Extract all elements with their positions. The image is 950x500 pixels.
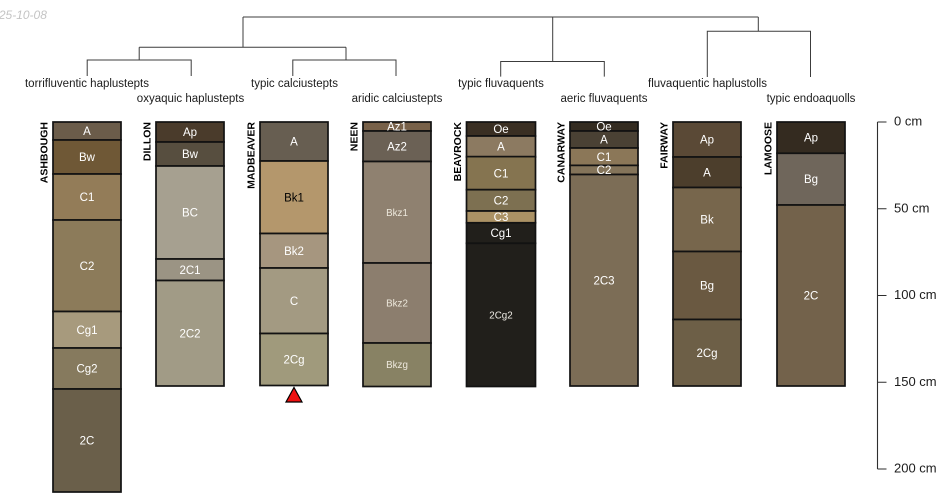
- svg-text:150 cm: 150 cm: [894, 374, 937, 389]
- svg-text:A: A: [600, 135, 608, 147]
- svg-text:2C1: 2C1: [179, 265, 200, 277]
- svg-text:BEAVROCK: BEAVROCK: [452, 122, 464, 182]
- svg-text:A: A: [83, 126, 91, 138]
- svg-text:typic endoaquolls: typic endoaquolls: [767, 93, 856, 105]
- svg-text:Ap: Ap: [700, 135, 714, 147]
- svg-text:C2: C2: [494, 196, 509, 208]
- svg-text:Ap: Ap: [804, 133, 818, 145]
- svg-text:oxyaquic haplustepts: oxyaquic haplustepts: [137, 93, 245, 105]
- svg-text:Cg1: Cg1: [76, 325, 97, 337]
- svg-text:Bkz1: Bkz1: [386, 208, 408, 219]
- svg-text:LAMOOSE: LAMOOSE: [763, 122, 775, 175]
- svg-text:Az2: Az2: [387, 142, 407, 154]
- svg-text:2C: 2C: [804, 291, 819, 303]
- svg-text:100 cm: 100 cm: [894, 287, 937, 302]
- svg-text:MADBEAVER: MADBEAVER: [246, 122, 258, 189]
- svg-text:Oe: Oe: [596, 122, 611, 134]
- svg-text:C1: C1: [80, 192, 95, 204]
- svg-text:C2: C2: [80, 261, 95, 273]
- svg-text:2C: 2C: [80, 436, 95, 448]
- svg-text:C3: C3: [494, 212, 509, 224]
- svg-text:Cg2: Cg2: [76, 364, 97, 376]
- svg-text:C1: C1: [597, 152, 612, 164]
- svg-text:CANARWAY: CANARWAY: [556, 122, 568, 183]
- svg-text:BC: BC: [182, 208, 198, 220]
- svg-text:typic fluvaquents: typic fluvaquents: [458, 78, 544, 90]
- svg-text:Bw: Bw: [182, 149, 199, 161]
- svg-text:2Cg: 2Cg: [283, 355, 304, 367]
- svg-text:Bk2: Bk2: [284, 246, 304, 258]
- svg-text:fluvaquentic haplustolls: fluvaquentic haplustolls: [648, 78, 767, 90]
- svg-text:Bk1: Bk1: [284, 193, 304, 205]
- svg-text:Bg: Bg: [804, 174, 818, 186]
- svg-text:Bk: Bk: [700, 215, 714, 227]
- svg-text:A: A: [703, 168, 711, 180]
- svg-text:C1: C1: [494, 169, 509, 181]
- svg-text:2C3: 2C3: [593, 276, 614, 288]
- svg-text:2C2: 2C2: [179, 329, 200, 341]
- svg-text:2Cg: 2Cg: [696, 348, 717, 360]
- svg-text:DILLON: DILLON: [142, 122, 154, 161]
- svg-text:Cg1: Cg1: [490, 228, 511, 240]
- svg-text:aeric fluvaquents: aeric fluvaquents: [561, 93, 648, 105]
- svg-text:Bg: Bg: [700, 281, 714, 293]
- svg-text:Bw: Bw: [79, 152, 96, 164]
- svg-text:Oe: Oe: [493, 124, 508, 136]
- svg-text:2025-10-08: 2025-10-08: [0, 8, 47, 22]
- svg-text:NEEN: NEEN: [349, 122, 361, 151]
- svg-text:C: C: [290, 296, 298, 308]
- svg-text:Bkzg: Bkzg: [386, 360, 408, 371]
- svg-text:ASHBOUGH: ASHBOUGH: [39, 122, 51, 183]
- svg-text:typic calciustepts: typic calciustepts: [251, 78, 338, 90]
- svg-text:0 cm: 0 cm: [894, 114, 922, 129]
- svg-text:A: A: [497, 142, 505, 154]
- svg-text:aridic calciustepts: aridic calciustepts: [352, 93, 443, 105]
- svg-text:200 cm: 200 cm: [894, 461, 937, 476]
- svg-text:A: A: [290, 137, 298, 149]
- svg-text:2Cg2: 2Cg2: [489, 311, 512, 322]
- svg-text:torrifluventic haplustepts: torrifluventic haplustepts: [25, 78, 149, 90]
- svg-text:C2: C2: [597, 165, 612, 177]
- svg-text:50 cm: 50 cm: [894, 201, 929, 216]
- svg-text:Az1: Az1: [387, 122, 407, 134]
- svg-text:Bkz2: Bkz2: [386, 299, 408, 310]
- svg-text:Ap: Ap: [183, 127, 197, 139]
- svg-text:FAIRWAY: FAIRWAY: [659, 122, 671, 169]
